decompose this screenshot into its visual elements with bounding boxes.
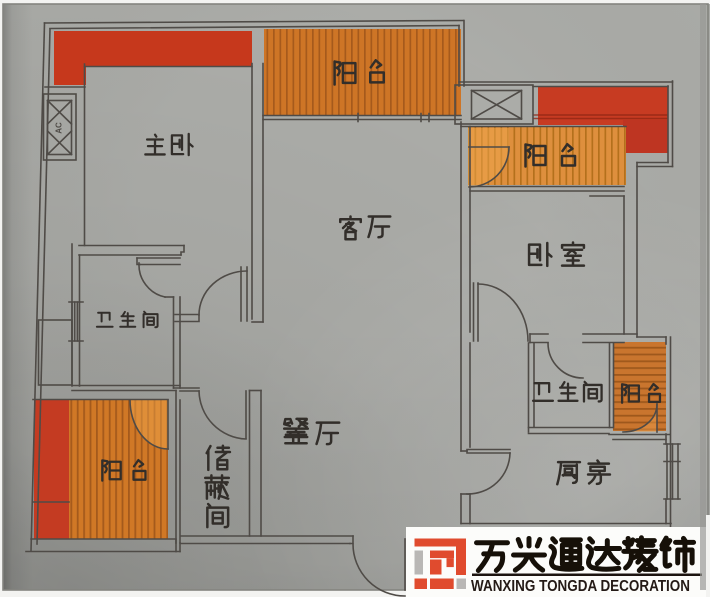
svg-text:WANXING TONGDA DECORATION: WANXING TONGDA DECORATION [471,578,690,595]
svg-text:AC: AC [55,122,64,134]
